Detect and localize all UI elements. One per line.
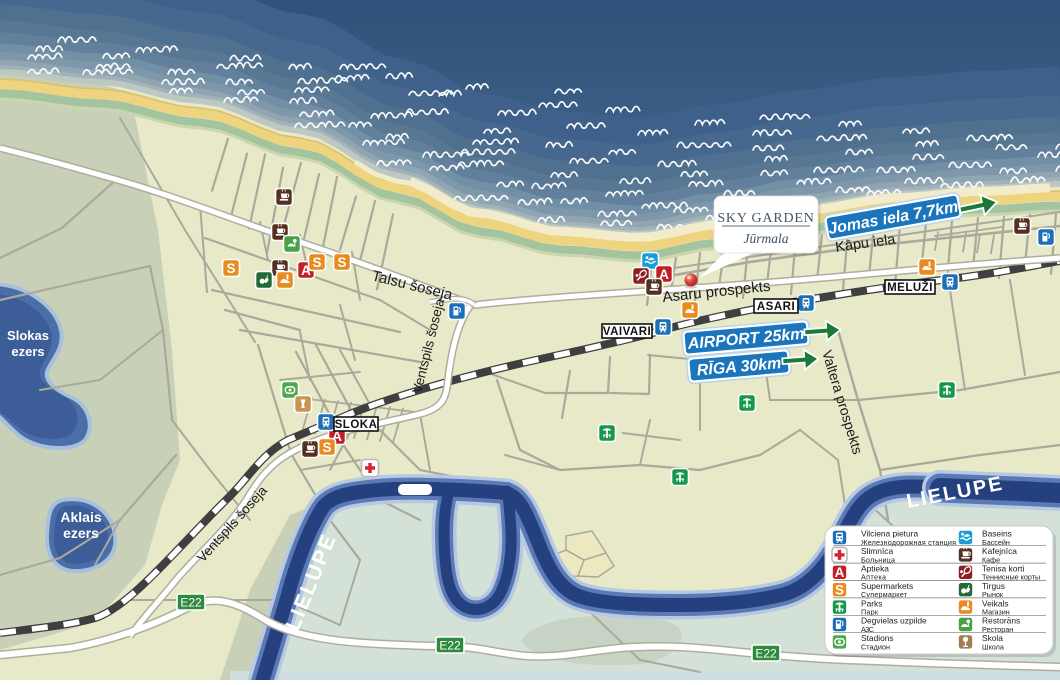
- svg-text:ezers: ezers: [11, 344, 44, 359]
- svg-text:S: S: [312, 255, 321, 270]
- svg-text:Slokas: Slokas: [7, 328, 49, 343]
- svg-text:S: S: [226, 261, 235, 276]
- svg-text:MELUŽI: MELUŽI: [887, 281, 933, 294]
- svg-text:SKY GARDEN: SKY GARDEN: [717, 211, 814, 226]
- svg-text:ASARI: ASARI: [757, 301, 795, 313]
- svg-text:A: A: [835, 565, 845, 580]
- svg-text:E22: E22: [180, 596, 202, 610]
- svg-text:Школа: Школа: [982, 642, 1004, 651]
- svg-text:VAIVARI: VAIVARI: [603, 326, 651, 338]
- svg-text:S: S: [322, 440, 331, 455]
- svg-text:Jūrmala: Jūrmala: [744, 231, 789, 246]
- svg-text:E22: E22: [439, 639, 461, 653]
- svg-text:S: S: [835, 583, 844, 598]
- svg-text:SLOKA: SLOKA: [335, 419, 378, 431]
- svg-text:ezers: ezers: [63, 525, 99, 541]
- svg-text:Стадион: Стадион: [861, 642, 890, 651]
- svg-text:S: S: [337, 255, 346, 270]
- svg-text:Aklais: Aklais: [60, 509, 101, 525]
- svg-text:E22: E22: [755, 647, 777, 661]
